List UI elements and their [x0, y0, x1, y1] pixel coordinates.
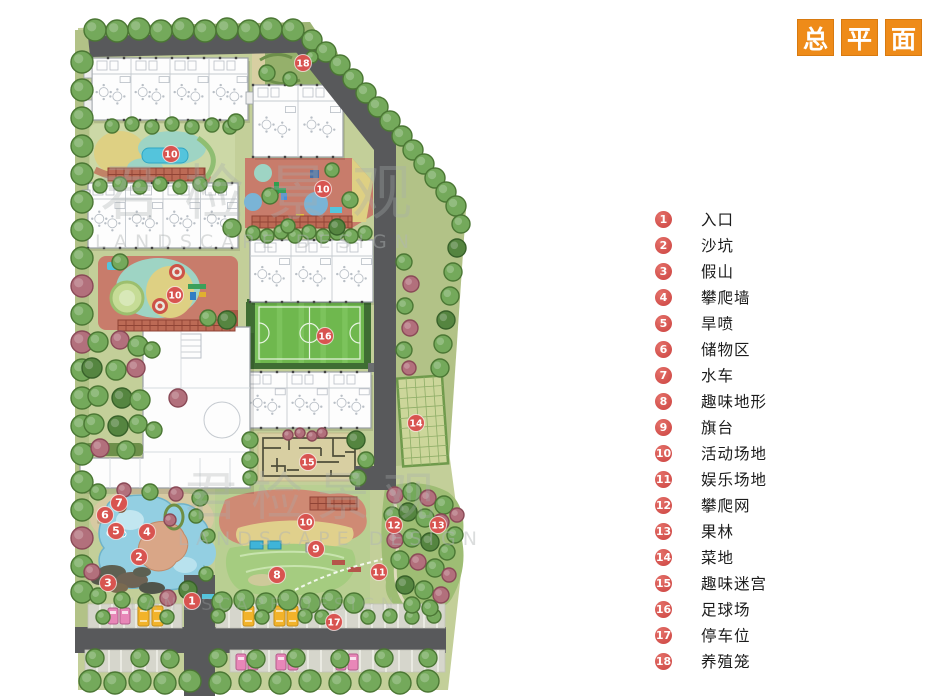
tree-icon	[239, 670, 261, 692]
legend-number-badge: 6	[655, 341, 672, 358]
map-marker: 12	[386, 517, 403, 534]
legend-number-badge: 3	[655, 263, 672, 280]
legend-label: 娱乐场地	[701, 468, 767, 490]
tree-icon	[82, 358, 102, 378]
tree-icon	[350, 470, 366, 486]
svg-text:9: 9	[312, 543, 320, 556]
legend-number-badge: 18	[655, 653, 672, 670]
map-marker: 8	[269, 567, 286, 584]
tree-icon	[421, 533, 439, 551]
tree-icon	[131, 649, 149, 667]
legend-item: 14菜地	[655, 544, 767, 570]
tree-icon	[281, 219, 295, 233]
tree-icon	[192, 490, 208, 506]
tree-icon	[142, 484, 158, 500]
tree-icon	[448, 239, 466, 257]
legend-label: 趣味地形	[701, 390, 767, 412]
legend-item: 2沙坑	[655, 232, 767, 258]
tree-icon	[161, 650, 179, 668]
svg-text:6: 6	[101, 509, 109, 522]
svg-text:14: 14	[409, 419, 423, 430]
tree-icon	[114, 592, 130, 608]
map-marker: 10	[298, 514, 315, 531]
tree-icon	[383, 609, 397, 623]
tree-icon	[71, 275, 93, 297]
tree-icon	[404, 597, 420, 613]
legend-item: 1入口	[655, 206, 767, 232]
tree-icon	[228, 114, 244, 130]
tree-icon	[247, 650, 265, 668]
tree-icon	[104, 672, 126, 694]
tree-icon	[255, 610, 269, 624]
tree-icon	[283, 430, 293, 440]
tree-icon	[201, 529, 215, 543]
tree-icon	[71, 247, 93, 269]
legend-label: 果林	[701, 520, 734, 542]
tree-icon	[71, 303, 93, 325]
tree-icon	[90, 484, 106, 500]
tree-icon	[325, 163, 339, 177]
tree-icon	[153, 177, 167, 191]
tree-icon	[302, 225, 316, 239]
tree-icon	[402, 361, 416, 375]
car-icon	[120, 608, 130, 624]
tree-icon	[415, 581, 433, 599]
tree-icon	[422, 600, 438, 616]
legend-number-badge: 5	[655, 315, 672, 332]
tree-icon	[331, 650, 349, 668]
tree-icon	[403, 529, 421, 547]
map-marker: 5	[108, 523, 125, 540]
tree-icon	[211, 609, 225, 623]
legend-item: 10活动场地	[655, 440, 767, 466]
legend-number-badge: 9	[655, 419, 672, 436]
legend-item: 7水车	[655, 362, 767, 388]
tree-icon	[322, 590, 342, 610]
tree-icon	[246, 226, 260, 240]
legend-label: 攀爬网	[701, 494, 751, 516]
legend-item: 16足球场	[655, 596, 767, 622]
svg-text:5: 5	[112, 525, 120, 538]
svg-text:17: 17	[327, 618, 340, 629]
tree-icon	[144, 342, 160, 358]
legend-item: 8趣味地形	[655, 388, 767, 414]
tree-icon	[179, 670, 201, 692]
tree-icon	[344, 229, 358, 243]
map-marker: 9	[308, 541, 325, 558]
tree-icon	[71, 527, 93, 549]
tree-icon	[164, 514, 176, 526]
tree-icon	[238, 20, 260, 42]
tree-icon	[278, 590, 298, 610]
svg-text:18: 18	[296, 59, 310, 70]
car-icon	[276, 654, 286, 670]
tree-icon	[329, 219, 345, 235]
svg-text:3: 3	[104, 577, 112, 590]
legend-label: 储物区	[701, 338, 751, 360]
tree-icon	[71, 79, 93, 101]
tree-icon	[71, 107, 93, 129]
tree-icon	[295, 428, 305, 438]
map-marker: 10	[315, 181, 332, 198]
legend-number-badge: 2	[655, 237, 672, 254]
tree-icon	[431, 359, 449, 377]
tree-icon	[282, 19, 304, 41]
tree-icon	[79, 670, 101, 692]
tree-icon	[389, 672, 411, 694]
map-marker: 16	[317, 328, 334, 345]
tree-icon	[154, 672, 176, 694]
tree-icon	[91, 439, 109, 457]
tree-icon	[329, 672, 351, 694]
tree-icon	[145, 120, 159, 134]
tree-icon	[138, 594, 154, 610]
tree-icon	[185, 120, 199, 134]
title-char-box: 平	[841, 19, 878, 56]
title-char-box: 面	[885, 19, 922, 56]
legend-item: 15趣味迷宫	[655, 570, 767, 596]
tree-icon	[403, 483, 421, 501]
tree-icon	[262, 188, 278, 204]
legend-label: 养殖笼	[701, 650, 751, 672]
map-marker: 13	[430, 517, 447, 534]
legend-label: 入口	[701, 208, 734, 230]
map-marker: 11	[371, 564, 388, 581]
svg-text:10: 10	[168, 291, 182, 302]
tree-icon	[433, 587, 449, 603]
tree-icon	[113, 177, 127, 191]
legend-number-badge: 1	[655, 211, 672, 228]
tree-icon	[441, 287, 459, 305]
tree-icon	[130, 390, 150, 410]
tree-icon	[402, 320, 418, 336]
tree-icon	[160, 610, 174, 624]
svg-text:15: 15	[301, 458, 314, 469]
play-mat	[250, 541, 263, 549]
tree-icon	[317, 428, 327, 438]
map-marker: 10	[167, 287, 184, 304]
tree-icon	[450, 508, 464, 522]
legend-label: 菜地	[701, 546, 734, 568]
tree-icon	[213, 179, 227, 193]
svg-text:4: 4	[143, 526, 151, 539]
legend: 1入口2沙坑3假山4攀爬墙5旱喷6储物区7水车8趣味地形9旗台10活动场地11娱…	[655, 206, 767, 674]
tree-icon	[307, 431, 317, 441]
tree-icon	[347, 431, 365, 449]
legend-item: 3假山	[655, 258, 767, 284]
tree-icon	[108, 416, 128, 436]
tree-icon	[160, 590, 176, 606]
tree-icon	[419, 649, 437, 667]
tree-icon	[298, 609, 312, 623]
svg-text:13: 13	[431, 521, 444, 532]
legend-label: 趣味迷宫	[701, 572, 767, 594]
map-marker: 2	[131, 549, 148, 566]
tree-icon	[209, 672, 231, 694]
svg-text:16: 16	[318, 332, 332, 343]
tree-icon	[112, 254, 128, 270]
legend-label: 沙坑	[701, 234, 734, 256]
tree-icon	[194, 20, 216, 42]
legend-label: 停车位	[701, 624, 751, 646]
tree-icon	[410, 554, 426, 570]
tree-icon	[359, 670, 381, 692]
master-plan-page: 君检景观 LANDSCAPE DESIGN 君检景观 LANDSCAPE DES…	[0, 0, 931, 696]
site-plan-map-wrap: 君检景观 LANDSCAPE DESIGN 君检景观 LANDSCAPE DES…	[0, 0, 520, 696]
site-plan-map: 君检景观 LANDSCAPE DESIGN 君检景观 LANDSCAPE DES…	[0, 0, 520, 696]
svg-text:11: 11	[372, 568, 385, 579]
legend-number-badge: 4	[655, 289, 672, 306]
legend-label: 水车	[701, 364, 734, 386]
map-marker: 17	[326, 614, 343, 631]
tree-icon	[200, 310, 216, 326]
tree-icon	[242, 452, 258, 468]
tree-icon	[399, 503, 417, 521]
legend-label: 足球场	[701, 598, 751, 620]
play-mat	[268, 541, 281, 549]
tree-icon	[189, 509, 203, 523]
legend-label: 旗台	[701, 416, 734, 438]
tree-icon	[169, 389, 187, 407]
svg-text:10: 10	[164, 150, 178, 161]
tree-icon	[242, 432, 258, 448]
svg-text:12: 12	[387, 521, 400, 532]
tree-icon	[287, 649, 305, 667]
legend-number-badge: 15	[655, 575, 672, 592]
legend-item: 17停车位	[655, 622, 767, 648]
tree-icon	[387, 532, 403, 548]
legend-number-badge: 10	[655, 445, 672, 462]
tree-icon	[403, 276, 419, 292]
football-field	[246, 299, 371, 369]
tree-icon	[260, 229, 274, 243]
tree-icon	[199, 567, 213, 581]
tree-icon	[397, 298, 413, 314]
tree-icon	[396, 342, 412, 358]
legend-item: 11娱乐场地	[655, 466, 767, 492]
car-icon	[348, 654, 358, 670]
tree-icon	[125, 117, 139, 131]
tree-icon	[112, 388, 132, 408]
tree-icon	[169, 487, 183, 501]
svg-text:2: 2	[135, 551, 143, 564]
tree-icon	[446, 196, 466, 216]
tree-icon	[452, 215, 470, 233]
title-char-box: 总	[797, 19, 834, 56]
map-marker: 10	[163, 146, 180, 163]
tree-icon	[209, 649, 227, 667]
tree-icon	[344, 593, 364, 613]
tree-icon	[283, 72, 297, 86]
tree-icon	[434, 335, 452, 353]
tree-icon	[96, 610, 110, 624]
svg-text:1: 1	[188, 595, 196, 608]
svg-text:8: 8	[273, 569, 281, 582]
tree-icon	[316, 229, 330, 243]
legend-number-badge: 12	[655, 497, 672, 514]
svg-text:10: 10	[316, 185, 330, 196]
tree-icon	[129, 415, 147, 433]
legend-item: 9旗台	[655, 414, 767, 440]
map-marker: 15	[300, 454, 317, 471]
tree-icon	[417, 670, 439, 692]
tree-icon	[437, 311, 455, 329]
tree-icon	[150, 20, 172, 42]
legend-number-badge: 13	[655, 523, 672, 540]
legend-label: 旱喷	[701, 312, 734, 334]
page-title: 总平面	[797, 19, 922, 56]
tree-icon	[358, 452, 374, 468]
tree-icon	[93, 179, 107, 193]
tree-icon	[269, 672, 291, 694]
tree-icon	[447, 527, 463, 543]
south-road	[75, 627, 446, 653]
tree-icon	[391, 551, 409, 569]
tree-icon	[88, 386, 108, 406]
tree-icon	[71, 135, 93, 157]
legend-item: 5旱喷	[655, 310, 767, 336]
tree-icon	[71, 499, 93, 521]
car-icon	[236, 654, 246, 670]
map-marker: 4	[139, 524, 156, 541]
tree-icon	[71, 163, 93, 185]
tree-icon	[439, 544, 455, 560]
tree-icon	[426, 559, 444, 577]
tree-icon	[299, 670, 321, 692]
legend-item: 6储物区	[655, 336, 767, 362]
tree-icon	[387, 487, 403, 503]
tree-icon	[223, 219, 241, 237]
tree-icon	[117, 441, 135, 459]
tree-icon	[71, 219, 93, 241]
tree-icon	[105, 119, 119, 133]
tree-icon	[71, 581, 93, 603]
legend-item: 4攀爬墙	[655, 284, 767, 310]
map-marker: 14	[408, 415, 425, 432]
tree-icon	[342, 192, 358, 208]
tree-icon	[260, 18, 282, 40]
legend-label: 假山	[701, 260, 734, 282]
tree-icon	[172, 18, 194, 40]
tree-icon	[243, 471, 257, 485]
tree-icon	[86, 649, 104, 667]
tree-icon	[88, 332, 108, 352]
tree-icon	[234, 590, 254, 610]
bench	[332, 560, 345, 565]
svg-text:7: 7	[115, 497, 123, 510]
tree-icon	[129, 670, 151, 692]
tree-icon	[396, 576, 414, 594]
tree-icon	[361, 610, 375, 624]
legend-item: 18养殖笼	[655, 648, 767, 674]
tree-icon	[84, 414, 104, 434]
legend-number-badge: 11	[655, 471, 672, 488]
tree-icon	[165, 117, 179, 131]
tree-icon	[71, 51, 93, 73]
legend-number-badge: 7	[655, 367, 672, 384]
tree-icon	[216, 18, 238, 40]
legend-number-badge: 17	[655, 627, 672, 644]
tree-icon	[193, 177, 207, 191]
map-marker: 1	[184, 593, 201, 610]
tree-icon	[128, 18, 150, 40]
legend-number-badge: 8	[655, 393, 672, 410]
tree-icon	[173, 180, 187, 194]
legend-label: 攀爬墙	[701, 286, 751, 308]
legend-item: 13果林	[655, 518, 767, 544]
tree-icon	[442, 568, 456, 582]
map-marker: 18	[295, 55, 312, 72]
tree-icon	[358, 226, 372, 240]
tree-icon	[259, 65, 275, 81]
tree-icon	[111, 331, 129, 349]
tree-icon	[396, 254, 412, 270]
map-marker: 7	[111, 495, 128, 512]
svg-text:10: 10	[299, 518, 313, 529]
tree-icon	[84, 564, 100, 580]
tree-icon	[127, 359, 145, 377]
tree-icon	[205, 118, 219, 132]
tree-icon	[218, 311, 236, 329]
map-marker: 6	[97, 507, 114, 524]
tree-icon	[71, 191, 93, 213]
map-marker: 3	[100, 575, 117, 592]
legend-number-badge: 16	[655, 601, 672, 618]
tree-icon	[146, 422, 162, 438]
tree-icon	[444, 263, 462, 281]
tree-icon	[375, 649, 393, 667]
tree-icon	[133, 180, 147, 194]
tree-icon	[84, 19, 106, 41]
legend-label: 活动场地	[701, 442, 767, 464]
tree-icon	[71, 443, 93, 465]
tree-icon	[420, 490, 436, 506]
legend-item: 12攀爬网	[655, 492, 767, 518]
legend-number-badge: 14	[655, 549, 672, 566]
tree-icon	[106, 20, 128, 42]
tree-icon	[106, 360, 126, 380]
